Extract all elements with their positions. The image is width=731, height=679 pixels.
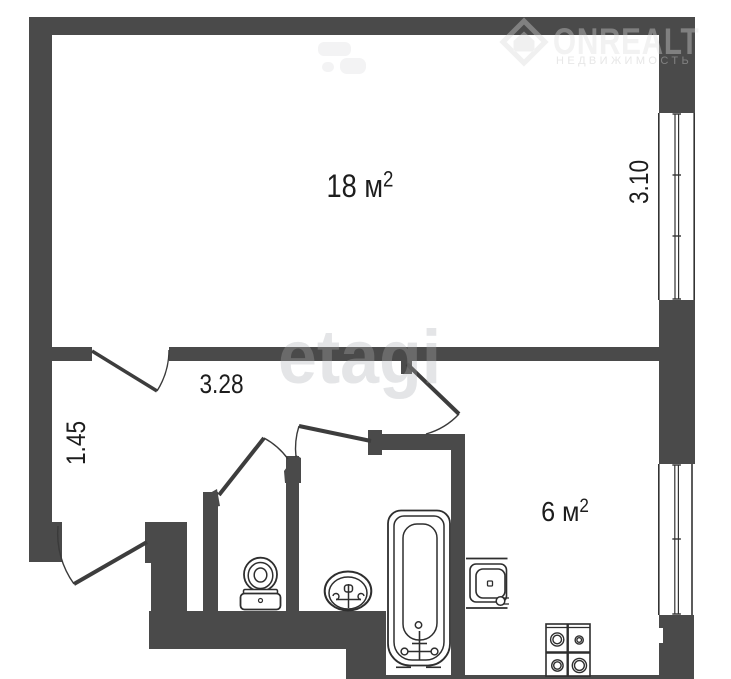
svg-text:НЕДВИЖИМОСТЬ: НЕДВИЖИМОСТЬ [556,55,692,67]
svg-text:3.10: 3.10 [624,160,654,204]
svg-text:etagi: etagi [278,315,441,399]
svg-text:3.28: 3.28 [199,369,243,399]
svg-text:1.45: 1.45 [61,421,91,465]
